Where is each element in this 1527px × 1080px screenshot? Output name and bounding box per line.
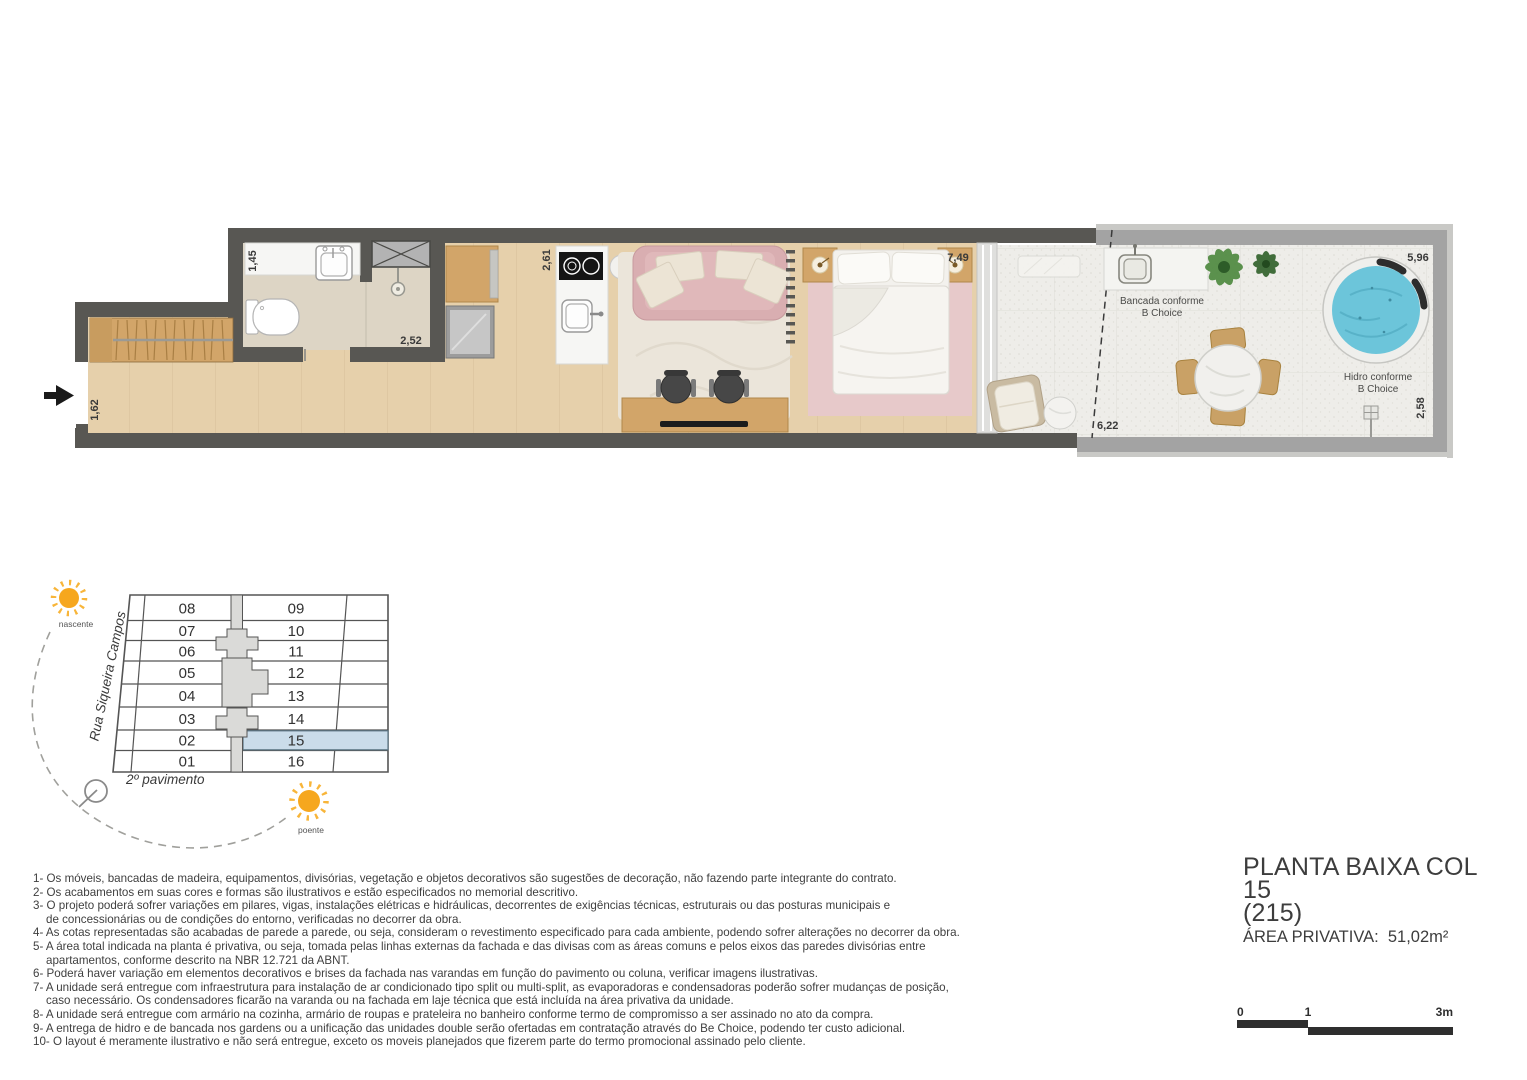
hydro-tub xyxy=(1323,257,1429,363)
scale-tick-0: 0 xyxy=(1237,1005,1244,1019)
sun-west-icon xyxy=(292,784,326,818)
unit-cell: 09 xyxy=(288,601,305,618)
hidro-label-line1: Hidro conforme xyxy=(1344,372,1413,383)
vanity-sink-icon xyxy=(316,246,352,280)
toilet-icon xyxy=(246,299,299,335)
scale-bar: 0 1 3m xyxy=(1225,1000,1485,1045)
dim-terrace-left: 6,22 xyxy=(1097,420,1118,432)
wardrobe xyxy=(90,318,233,362)
bancada-label-line2: B Choice xyxy=(1142,308,1183,319)
desk xyxy=(622,398,788,432)
unit-cell: 04 xyxy=(179,688,196,705)
side-table xyxy=(1044,397,1076,429)
wall-top xyxy=(228,228,1096,243)
note-line: 6- Poderá haver variação em elementos de… xyxy=(33,967,1193,981)
title-block: PLANTA BAIXA COL 15 (215) ÁREA PRIVATIVA… xyxy=(1243,856,1503,947)
unit-cell: 12 xyxy=(288,665,305,682)
unit-cell: 10 xyxy=(288,623,305,640)
note-line: 4- As cotas representadas são acabadas d… xyxy=(33,926,1193,940)
scale-segment xyxy=(1237,1020,1308,1028)
legal-notes: 1- Os móveis, bancadas de madeira, equip… xyxy=(33,872,1193,1049)
dim-terrace-width: 2,58 xyxy=(1415,397,1427,418)
dim-terrace-right: 5,96 xyxy=(1407,252,1428,264)
terrace-wall-bottom xyxy=(1077,437,1447,452)
terrace-wall-right xyxy=(1433,230,1447,452)
kitchen-island xyxy=(556,246,608,364)
scale-segment xyxy=(1308,1027,1453,1035)
note-line: 10- O layout é meramente ilustrativo e n… xyxy=(33,1035,1193,1049)
note-line: apartamentos, conforme descrito na NBR 1… xyxy=(33,954,1193,968)
scale-tick-1: 1 xyxy=(1305,1005,1312,1019)
pillow xyxy=(891,252,944,284)
bedroom xyxy=(803,248,972,416)
unit-cell: 11 xyxy=(288,644,304,661)
outdoor-counter xyxy=(1104,244,1208,290)
fridge xyxy=(446,306,494,358)
pillow xyxy=(837,252,890,285)
lounge-chair xyxy=(986,374,1047,433)
unit-cell: 16 xyxy=(288,754,305,771)
shaft-icon xyxy=(372,241,430,267)
sun-east-label: nascente xyxy=(59,619,94,629)
dining-table xyxy=(1195,345,1261,411)
plan-title-line1: PLANTA BAIXA COL 15 xyxy=(1243,856,1503,902)
unit-cell: 14 xyxy=(288,711,305,728)
tv-icon xyxy=(660,421,748,427)
dim-bathroom-width: 1,45 xyxy=(247,250,259,271)
cooktop-icon xyxy=(559,252,603,280)
plant xyxy=(1253,251,1279,277)
technical-slab xyxy=(1018,256,1080,277)
floor-label: 2º pavimento xyxy=(125,772,205,787)
bed xyxy=(833,250,949,394)
note-line: 5- A área total indicada na planta é pri… xyxy=(33,940,1193,954)
note-line: 7- A unidade será entregue com infraestr… xyxy=(33,981,1193,995)
dim-bathroom-length: 2,52 xyxy=(400,335,421,347)
entry-door-jamb xyxy=(76,424,88,429)
dim-kitchen-width: 2,61 xyxy=(541,249,553,270)
floor-plan: 1,62 1,45 2,52 2,61 7,49 6,22 5,96 2,58 … xyxy=(0,0,1527,530)
unit-cell: 05 xyxy=(179,665,196,682)
highlighted-unit-cell xyxy=(243,731,388,750)
note-line: 3- O projeto poderá sofrer variações em … xyxy=(33,899,1193,913)
sofa xyxy=(633,246,791,320)
unit-cell: 02 xyxy=(179,733,196,750)
unit-cell-highlighted: 15 xyxy=(288,733,305,750)
note-line: 1- Os móveis, bancadas de madeira, equip… xyxy=(33,872,1193,886)
scale-tick-3m: 3m xyxy=(1436,1005,1453,1019)
key-plan: nascente poente 08 07 xyxy=(0,560,440,890)
unit-cell: 01 xyxy=(179,754,196,771)
unit-cell: 06 xyxy=(179,644,196,661)
entry-wall-top xyxy=(75,302,243,317)
unit-cell: 03 xyxy=(179,711,196,728)
unit-grid: 08 07 06 05 04 03 02 01 09 10 11 12 13 1… xyxy=(113,595,388,772)
terrace-wall-top xyxy=(1096,230,1447,245)
bancada-label-line1: Bancada conforme xyxy=(1120,296,1204,307)
hidro-label-line2: B Choice xyxy=(1358,384,1399,395)
plan-title-line2: (215) xyxy=(1243,902,1503,925)
living-room xyxy=(618,246,795,432)
nightstand xyxy=(803,248,837,282)
note-line: 2- Os acabamentos em suas cores e formas… xyxy=(33,886,1193,900)
dim-living-length: 7,49 xyxy=(947,252,968,264)
note-line: de concessionárias ou de condições do en… xyxy=(33,913,1193,927)
entrance-arrow-icon xyxy=(44,385,74,406)
bathroom-wall-right xyxy=(430,228,445,362)
wall-bottom xyxy=(75,433,1077,448)
north-indicator-icon xyxy=(79,780,107,807)
dim-entry: 1,62 xyxy=(89,399,101,420)
unit-cell: 07 xyxy=(179,623,196,640)
note-line: 9- A entrega de hidro e de bancada nos g… xyxy=(33,1022,1193,1036)
entry-door-jamb xyxy=(76,357,88,362)
private-area-label: ÁREA PRIVATIVA: 51,02m² xyxy=(1243,928,1503,947)
note-line: caso necessário. Os condensadores ficarã… xyxy=(33,994,1193,1008)
unit-cell: 13 xyxy=(288,688,305,705)
unit-cell: 08 xyxy=(179,601,196,618)
sun-west-label: poente xyxy=(298,825,324,835)
sun-east-icon xyxy=(54,583,85,614)
note-line: 8- A unidade será entregue com armário n… xyxy=(33,1008,1193,1022)
